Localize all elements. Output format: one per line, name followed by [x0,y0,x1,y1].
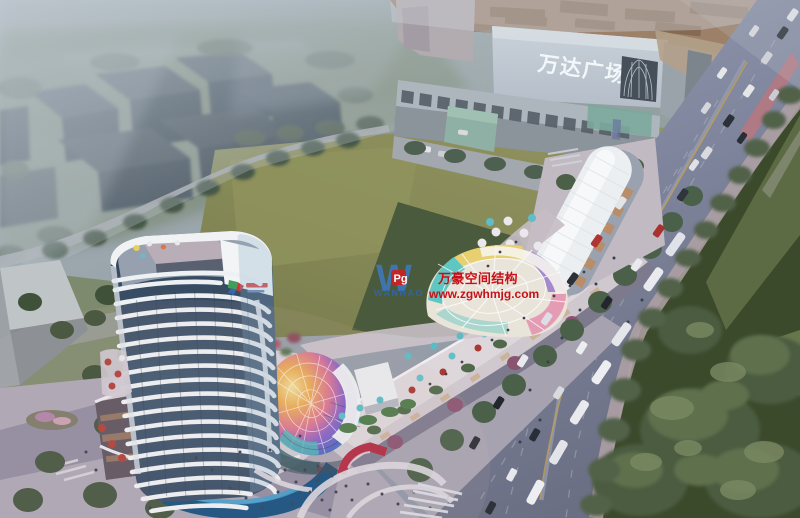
svg-text:万豪空间结构: 万豪空间结构 [437,271,518,286]
svg-text:www.zgwhmjg.com: www.zgwhmjg.com [428,287,539,301]
svg-text:Pg: Pg [394,273,408,285]
svg-text:WANHAO: WANHAO [374,288,424,298]
